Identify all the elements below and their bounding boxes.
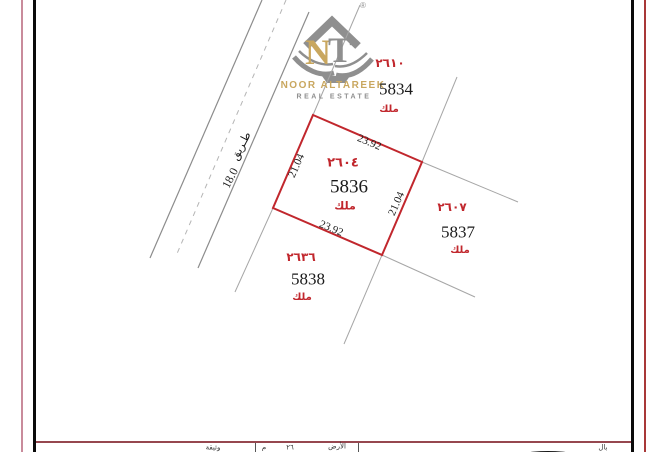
plot-5837-tenure: ملك xyxy=(450,246,470,256)
footer-cell-f1: م xyxy=(262,445,266,452)
footer-divider xyxy=(358,443,359,452)
registered-trademark-icon: ® xyxy=(360,2,366,10)
plot-5834-tenure: ملك xyxy=(379,105,399,115)
footer-cell-f2: ٢٦ xyxy=(286,445,294,452)
site-plan-page: N T ® NOOR ALTAREEK REAL ESTATE طـريق 18… xyxy=(0,0,668,452)
footer-cell-document: وثيقة xyxy=(206,445,221,452)
boundary-line-lower-left xyxy=(235,208,273,292)
frame-left-black-border xyxy=(33,0,36,452)
plot-5838-number: 5838 xyxy=(291,271,325,288)
boundary-line-5837-front xyxy=(422,162,518,202)
plot-5838-tenure: ملك xyxy=(292,293,312,303)
plot-5834-parcel-number: ٢٦١٠ xyxy=(375,57,404,69)
road-right-edge-line xyxy=(198,12,309,268)
footer-divider xyxy=(255,443,256,452)
logo-tagline: REAL ESTATE xyxy=(297,94,372,101)
logo-letter-t: T xyxy=(328,32,352,68)
boundary-line-5837-rear xyxy=(382,255,475,297)
plot-5836-parcel-number: ٢٦٠٤ xyxy=(327,157,359,170)
road-left-edge-line xyxy=(150,0,262,258)
plot-5834-number: 5834 xyxy=(379,81,413,98)
logo-company-name: NOOR ALTAREEK xyxy=(281,81,386,91)
footer-cell-f4: بال xyxy=(598,445,607,452)
plot-5838-parcel-number: ٢٦٣٦ xyxy=(286,251,315,263)
frame-right-black-border xyxy=(631,0,634,452)
plot-5836-tenure: ملك xyxy=(334,201,356,212)
boundary-line-lower-right xyxy=(344,255,382,344)
plot-5836-number: 5836 xyxy=(330,178,368,197)
boundary-line-upper-right xyxy=(422,77,457,162)
plot-5837-parcel-number: ٢٦٠٧ xyxy=(437,201,466,213)
footer-cell-f3: الأرض xyxy=(328,444,346,451)
plot-5837-number: 5837 xyxy=(441,224,475,241)
road-center-dashed-line xyxy=(176,0,286,256)
